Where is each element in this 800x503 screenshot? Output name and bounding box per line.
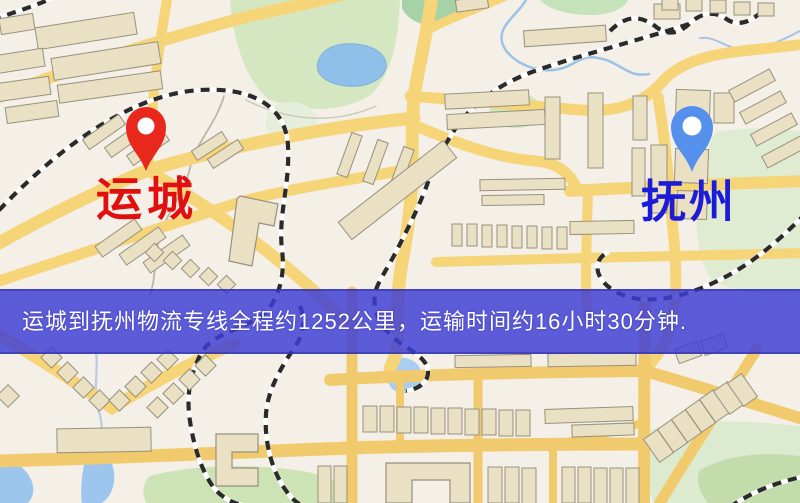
route-info-text: 运城到抚州物流专线全程约1252公里，运输时间约16小时30分钟. — [0, 311, 687, 333]
map-screenshot: 运城 抚州 运城到抚州物流专线全程约1252公里，运输时间约16小时30分钟. — [0, 0, 800, 503]
route-info-banner: 运城到抚州物流专线全程约1252公里，运输时间约16小时30分钟. — [0, 289, 800, 354]
map-canvas: 运城 抚州 — [0, 0, 800, 503]
origin-pin-hole — [138, 118, 155, 135]
destination-label: 抚州 — [641, 176, 737, 227]
origin-label: 运城 — [96, 173, 198, 225]
destination-pin-hole — [683, 117, 702, 136]
